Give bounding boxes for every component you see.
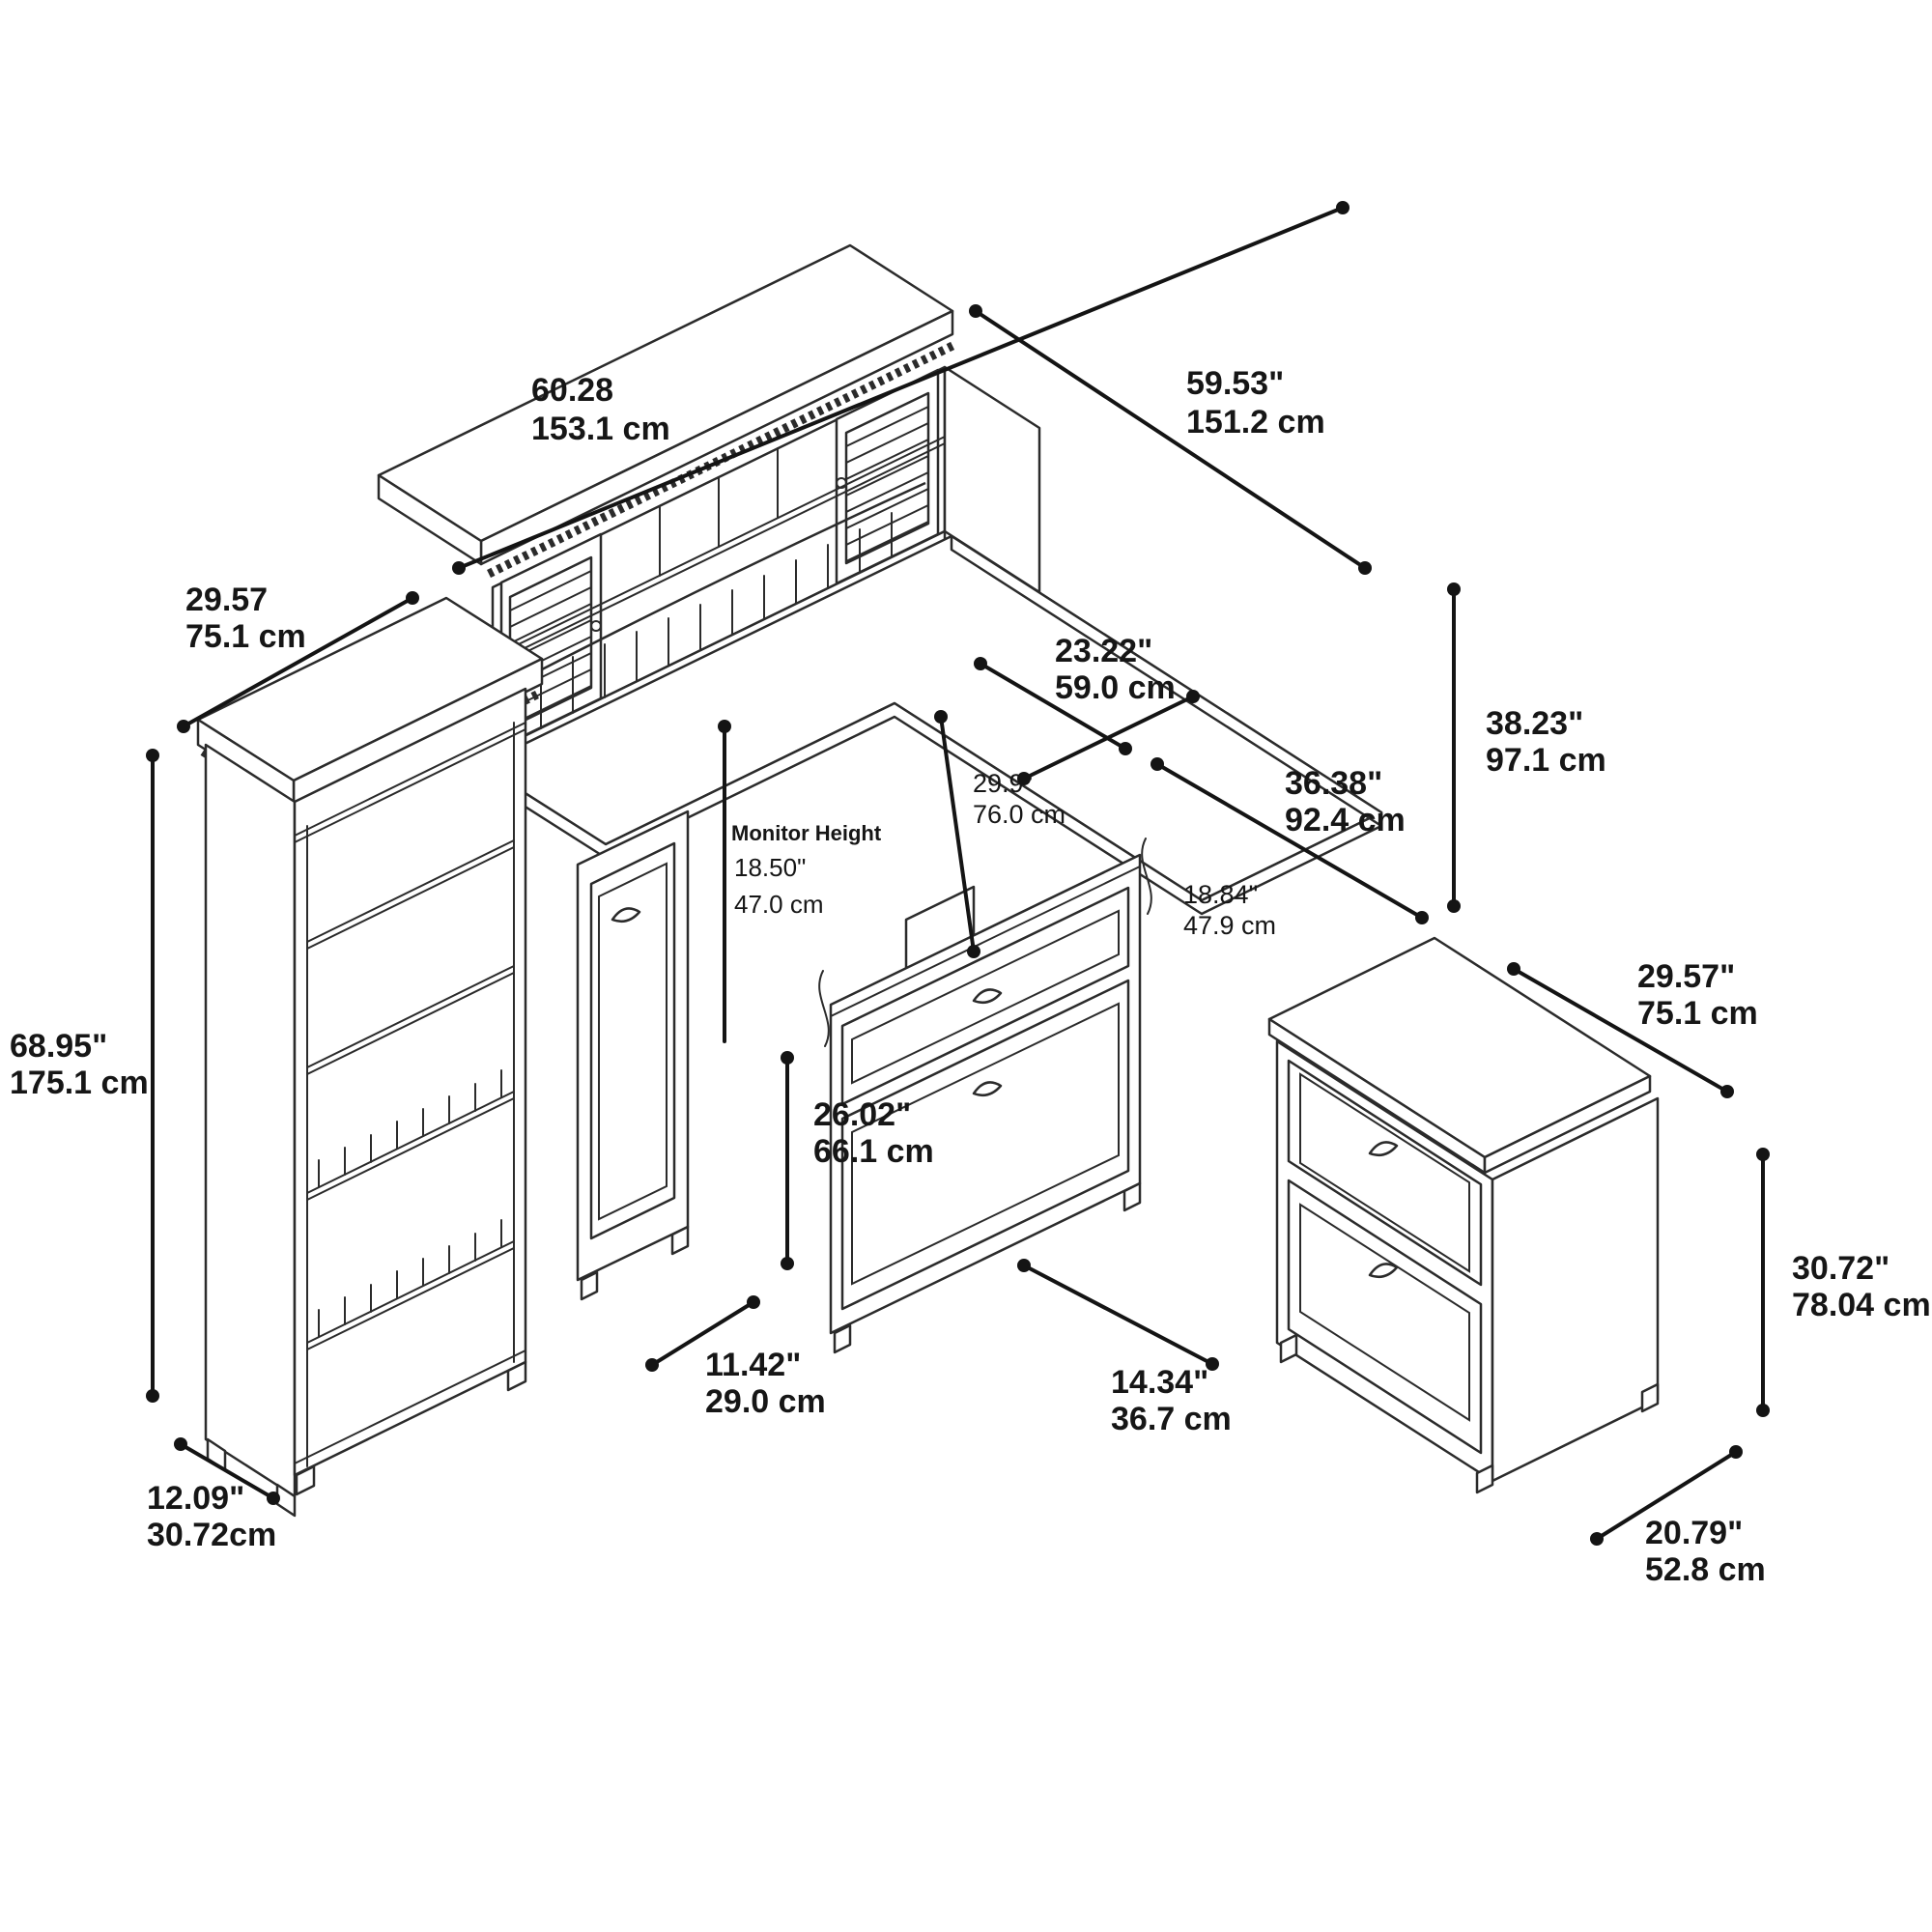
dim-label: 75.1 cm	[185, 618, 306, 655]
dim-label: 60.28	[531, 372, 613, 409]
dim-label: 92.4 cm	[1285, 802, 1406, 838]
dim-label: 59.0 cm	[1055, 669, 1176, 706]
dim-label: 38.23"	[1486, 705, 1583, 742]
diagram-canvas: 60.28 153.1 cm 59.53" 151.2 cm 29.57 75.…	[0, 0, 1932, 1932]
bookcase-front	[295, 689, 526, 1475]
dim-label: 30.72cm	[147, 1517, 276, 1553]
dim-label: 36.38"	[1285, 765, 1382, 802]
desk-corner-scroll-left	[819, 971, 829, 1046]
dim-label: 151.2 cm	[1186, 404, 1325, 440]
dim-label: 68.95"	[10, 1028, 107, 1065]
dim-label: 47.9 cm	[1183, 911, 1276, 940]
dim-label: 20.79"	[1645, 1515, 1743, 1551]
lateral-file	[1269, 938, 1658, 1492]
dim-label: 175.1 cm	[10, 1065, 149, 1101]
dim-label: 18.84"	[1183, 880, 1258, 909]
dim-overall-height: 38.23" 97.1 cm	[1447, 582, 1606, 913]
dim-file-depth: 20.79" 52.8 cm	[1590, 1445, 1766, 1588]
dim-bookcase-height: 68.95" 175.1 cm	[10, 749, 159, 1403]
dim-label: 76.0 cm	[973, 800, 1065, 829]
dim-drawer-pedestal-width: 14.34" 36.7 cm	[1017, 1259, 1232, 1437]
dim-label: 52.8 cm	[1645, 1551, 1766, 1588]
dim-label: 11.42"	[705, 1347, 801, 1383]
dim-label: 97.1 cm	[1486, 742, 1606, 779]
door-pedestal	[578, 811, 688, 1299]
dim-label: 23.22"	[1055, 633, 1152, 669]
dim-label: 12.09"	[147, 1480, 244, 1517]
dim-label: 14.34"	[1111, 1364, 1208, 1401]
dim-label: 29.57"	[1637, 958, 1735, 995]
bookcase	[198, 598, 542, 1516]
dim-label: 75.1 cm	[1637, 995, 1758, 1032]
dim-label: 29.0 cm	[705, 1383, 826, 1420]
dim-label: 26.02"	[813, 1096, 911, 1133]
dim-label: 30.72"	[1792, 1250, 1889, 1287]
dim-label: Monitor Height	[731, 821, 882, 845]
dim-label: 78.04 cm	[1792, 1287, 1931, 1323]
dim-file-height: 30.72" 78.04 cm	[1756, 1148, 1931, 1417]
dim-label: 153.1 cm	[531, 411, 670, 447]
dim-label: 36.7 cm	[1111, 1401, 1232, 1437]
dim-label: 18.50"	[734, 853, 806, 882]
dim-label: 47.0 cm	[734, 890, 824, 919]
dim-label: 29.57	[185, 582, 268, 618]
dim-pedestal-width: 11.42" 29.0 cm	[645, 1295, 826, 1420]
dim-label: 59.53"	[1186, 365, 1284, 402]
dim-label: 66.1 cm	[813, 1133, 934, 1170]
bookcase-left-side	[206, 745, 295, 1496]
